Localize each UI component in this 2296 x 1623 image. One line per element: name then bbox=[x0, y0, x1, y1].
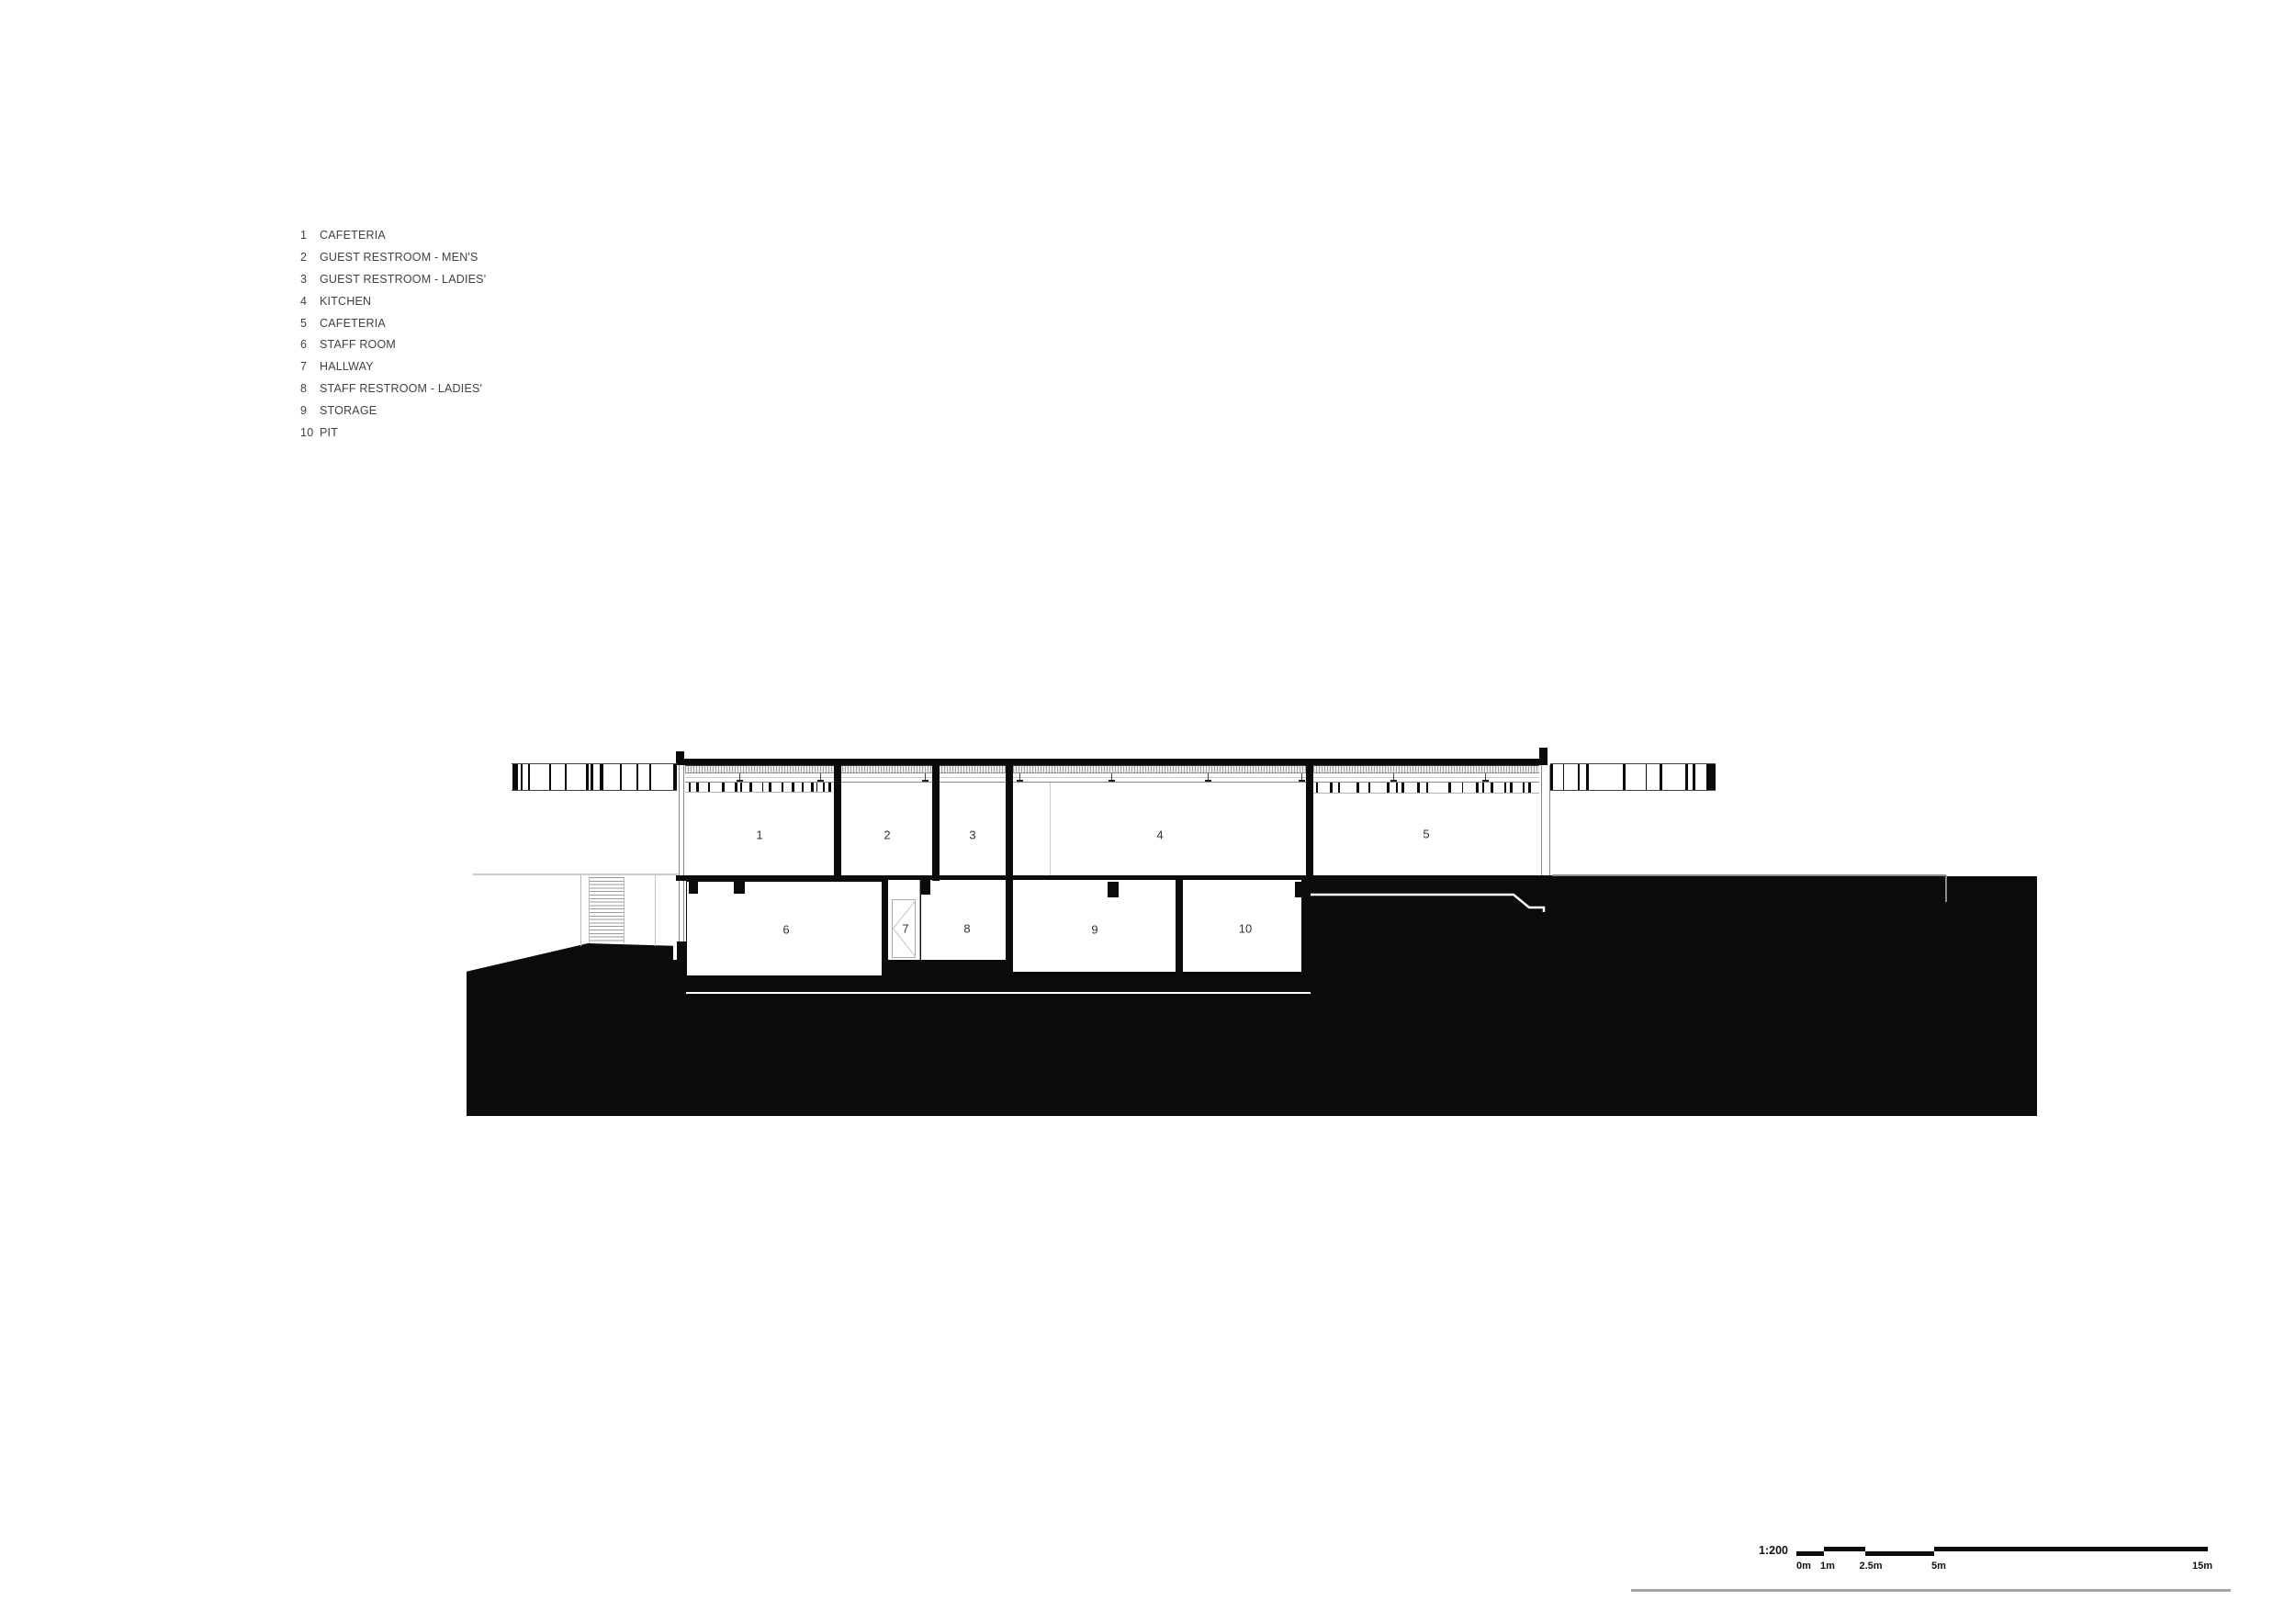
ceiling-baffle bbox=[811, 783, 814, 792]
beam-stub bbox=[1108, 882, 1119, 897]
ceiling-baffle bbox=[1482, 783, 1484, 793]
parapet-left bbox=[676, 751, 684, 761]
ceiling-hanger-cap bbox=[817, 780, 824, 782]
scale-segment bbox=[1824, 1547, 1865, 1551]
room-label-2: 2 bbox=[884, 828, 890, 842]
beam-stub bbox=[689, 882, 698, 894]
ceiling-baffle bbox=[1491, 783, 1493, 793]
screen-slat bbox=[549, 764, 551, 790]
roof-slab bbox=[676, 759, 1548, 765]
upper-wall bbox=[1006, 765, 1013, 881]
ceiling-baffle bbox=[749, 783, 752, 792]
scale-tick-15m: 15m bbox=[2192, 1561, 2212, 1572]
screen-slat bbox=[1660, 764, 1662, 790]
room-label-10: 10 bbox=[1239, 922, 1252, 936]
screen-slat bbox=[512, 764, 518, 790]
ceiling-baffle bbox=[1368, 783, 1370, 793]
ceiling-baffle bbox=[1417, 783, 1420, 793]
screen-slat bbox=[636, 764, 638, 790]
ground-mass-left-slope bbox=[467, 943, 673, 994]
ceiling-hanger-cap bbox=[1017, 780, 1023, 782]
ceiling-baffle bbox=[1387, 783, 1390, 793]
ceiling-baffle bbox=[1510, 783, 1513, 793]
beam-stub bbox=[734, 882, 745, 894]
ceiling-baffle bbox=[740, 783, 742, 792]
ceiling-baffle bbox=[1330, 783, 1333, 793]
room-label-7: 7 bbox=[902, 922, 908, 936]
screen-slat bbox=[673, 764, 677, 790]
foundation-joint-line bbox=[686, 992, 1311, 994]
room-label-4: 4 bbox=[1156, 828, 1163, 842]
screen-slat bbox=[565, 764, 567, 790]
baffle-bottom-line-room1 bbox=[685, 792, 832, 793]
ceiling-suspension-rail bbox=[685, 777, 1539, 778]
ceiling-baffle bbox=[1523, 783, 1525, 793]
ceiling-hanger-cap bbox=[737, 780, 743, 782]
room-label-6: 6 bbox=[782, 923, 789, 937]
exterior-stairs bbox=[589, 877, 624, 943]
ceiling-baffle bbox=[769, 783, 771, 792]
baffle-bottom-line-room5 bbox=[1313, 793, 1539, 794]
screen-slat bbox=[1563, 764, 1564, 790]
room-label-1: 1 bbox=[756, 828, 762, 842]
room-label-8: 8 bbox=[963, 922, 970, 936]
scale-tick-5m: 5m bbox=[1931, 1561, 1946, 1572]
ceiling-baffle bbox=[1316, 783, 1318, 793]
slat-screen-left bbox=[512, 763, 677, 791]
screen-slat bbox=[1685, 764, 1688, 790]
ceiling-baffle bbox=[1448, 783, 1451, 793]
beam-stub bbox=[1295, 882, 1301, 897]
glazing-mullion-left bbox=[683, 765, 684, 941]
screen-slat bbox=[1586, 764, 1589, 790]
ceiling-hanger-cap bbox=[1390, 780, 1397, 782]
ceiling-baffle bbox=[689, 783, 691, 792]
screen-slat bbox=[1693, 764, 1695, 790]
ceiling-baffle bbox=[1528, 783, 1531, 793]
ceiling-hanger-cap bbox=[1482, 780, 1489, 782]
roof-insulation-hatch bbox=[685, 765, 1539, 773]
room-label-9: 9 bbox=[1091, 923, 1097, 937]
scale-segment bbox=[1865, 1551, 1934, 1556]
ceiling-baffle bbox=[708, 783, 710, 792]
ground-mass-right bbox=[1552, 876, 2037, 994]
screen-slat bbox=[528, 764, 530, 790]
detail-lines-overlay bbox=[0, 0, 2296, 1623]
room-label-5: 5 bbox=[1423, 828, 1429, 841]
upper-wall bbox=[932, 765, 940, 881]
screen-slat bbox=[1646, 764, 1647, 790]
scale-tick-2.5m: 2.5m bbox=[1859, 1561, 1882, 1572]
screen-slat bbox=[1706, 764, 1716, 790]
ceiling-baffle bbox=[823, 783, 825, 792]
ceiling-baffle bbox=[696, 783, 699, 792]
footing-fill bbox=[673, 960, 678, 994]
slat-screen-right bbox=[1550, 763, 1716, 791]
screen-slat bbox=[1578, 764, 1580, 790]
screen-slat bbox=[649, 764, 651, 790]
ceiling-baffle bbox=[816, 783, 817, 792]
parapet-right bbox=[1539, 748, 1548, 761]
ceiling-baffle bbox=[1356, 783, 1359, 793]
screen-slat bbox=[600, 764, 603, 790]
scale-tick-0m: 0m bbox=[1796, 1561, 1811, 1572]
screen-slat bbox=[1550, 764, 1553, 790]
upper-wall bbox=[834, 765, 841, 881]
scale-tick-1m: 1m bbox=[1820, 1561, 1835, 1572]
screen-slat bbox=[521, 764, 523, 790]
beam-stub bbox=[921, 880, 930, 895]
ceiling-baffle bbox=[1396, 783, 1398, 793]
screen-slat bbox=[591, 764, 593, 790]
architectural-section-sheet: 1CAFETERIA 2GUEST RESTROOM - MEN'S 3GUES… bbox=[0, 0, 2296, 1623]
scale-segment bbox=[1796, 1551, 1824, 1556]
ceiling-hanger-cap bbox=[1109, 780, 1115, 782]
ceiling-baffle bbox=[1426, 783, 1428, 793]
ceiling-baffle bbox=[722, 783, 725, 792]
room-label-3: 3 bbox=[969, 828, 975, 842]
ceiling-baffle bbox=[762, 783, 763, 792]
glazing-mullion-left bbox=[679, 765, 680, 941]
ceiling-baffle bbox=[1504, 783, 1506, 793]
ceiling-baffle bbox=[828, 783, 831, 792]
scale-ratio: 1:200 bbox=[1735, 1544, 1788, 1557]
glazing-mullion-right bbox=[1541, 765, 1542, 877]
ceiling-baffle bbox=[1401, 783, 1404, 793]
screen-slat bbox=[1623, 764, 1626, 790]
room-7-interior bbox=[888, 880, 919, 960]
upper-wall bbox=[1306, 765, 1313, 881]
ceiling-baffle bbox=[1476, 783, 1479, 793]
ceiling-baffle bbox=[735, 783, 737, 792]
sheet-footer-line bbox=[1631, 1589, 2231, 1592]
ceiling-hanger-cap bbox=[1299, 780, 1305, 782]
screen-slat bbox=[586, 764, 589, 790]
ceiling-baffle bbox=[802, 783, 804, 792]
ground-mass-base bbox=[467, 994, 2037, 1116]
ceiling-baffle bbox=[1338, 783, 1340, 793]
screen-slat bbox=[620, 764, 622, 790]
room-8-interior bbox=[921, 880, 1006, 960]
building-section-drawing: 1 2 3 4 5 6 7 8 9 10 bbox=[0, 0, 2296, 1623]
ceiling-baffle bbox=[792, 783, 794, 792]
ceiling-baffle bbox=[1462, 783, 1463, 793]
ceiling-hanger-cap bbox=[1205, 780, 1211, 782]
scale-segment bbox=[1934, 1547, 2208, 1551]
ceiling-hanger-cap bbox=[922, 780, 929, 782]
ceiling-baffle bbox=[782, 783, 783, 792]
glass-partition-room4 bbox=[1050, 783, 1051, 875]
partition-7-8 bbox=[919, 880, 920, 960]
